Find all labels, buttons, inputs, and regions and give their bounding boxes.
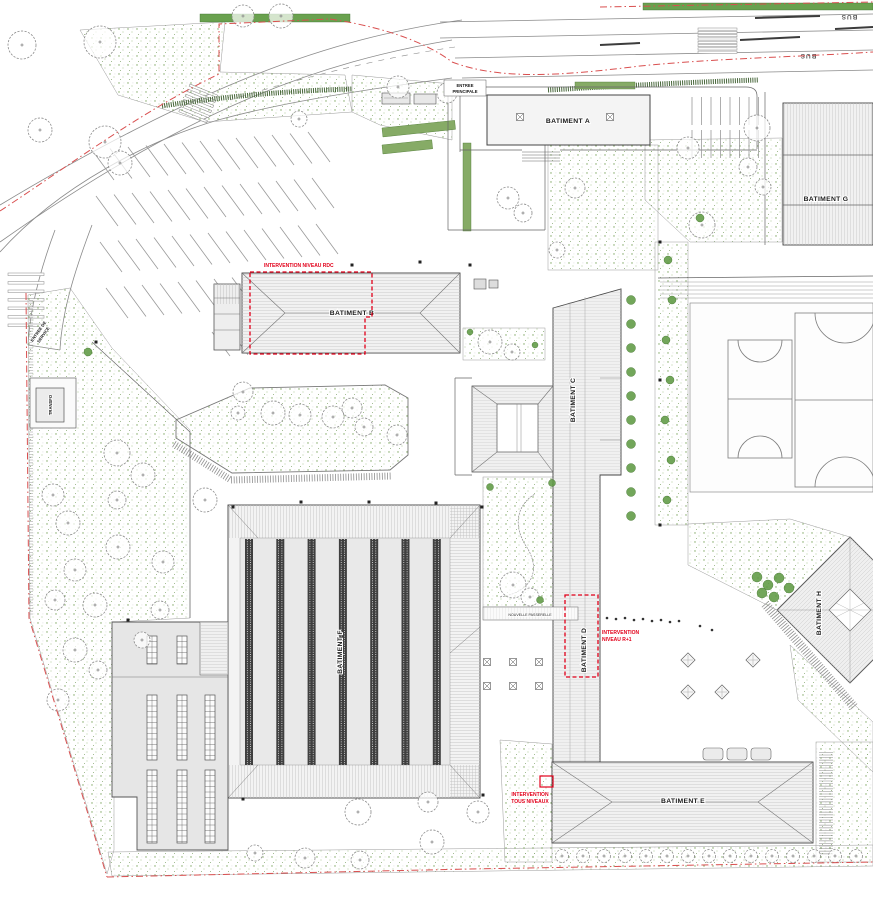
tree <box>231 406 245 420</box>
building-f: BATIMENT F <box>228 505 480 798</box>
roof-shed-band <box>245 539 253 765</box>
parking-stall-line <box>258 183 280 213</box>
site-mark <box>232 506 235 509</box>
shrub <box>627 440 636 449</box>
shrub <box>532 342 538 348</box>
path-dot <box>651 620 654 623</box>
tree <box>104 440 130 466</box>
site-plan: BUS BUS <box>0 0 873 900</box>
tree <box>703 850 716 863</box>
path-dot <box>669 621 672 624</box>
tree <box>47 689 69 711</box>
tree <box>521 588 539 606</box>
shrub <box>784 583 794 593</box>
bus-label: BUS <box>841 13 858 20</box>
shrub <box>84 348 92 356</box>
parking-stall-line <box>150 192 172 222</box>
tree <box>787 850 800 863</box>
entree-principale-label: ENTREE <box>457 83 474 88</box>
site-mark <box>242 798 245 801</box>
parking-stall-line <box>200 141 222 171</box>
tree <box>84 26 116 58</box>
parking-stall-line <box>142 285 164 315</box>
tree <box>108 491 126 509</box>
tree <box>478 330 502 354</box>
crosswalk-stripe <box>8 282 44 285</box>
parking-stall-line <box>208 233 230 263</box>
planters <box>681 653 760 699</box>
parking-stall-line <box>244 230 266 260</box>
shrub <box>664 256 672 264</box>
transfo-building: TRANSFO <box>30 378 76 428</box>
shrub <box>667 456 675 464</box>
shrub <box>627 320 636 329</box>
tree <box>106 535 130 559</box>
intervention-tous-label: TOUS NIVEAUX <box>511 799 549 805</box>
site-mark <box>368 501 371 504</box>
building-d-label: BATIMENT D <box>581 628 588 672</box>
shrub <box>627 368 636 377</box>
intervention-rdc-label: INTERVENTION NIVEAU RDC <box>264 263 334 269</box>
shrub <box>537 597 544 604</box>
building-g: BATIMENT G <box>783 103 873 245</box>
shrub <box>627 488 636 497</box>
parking-stall-line <box>164 144 186 174</box>
site-mark <box>351 264 354 267</box>
path-dot <box>633 619 636 622</box>
path-dot <box>699 625 702 628</box>
parking-stall-line <box>240 184 262 214</box>
tree <box>151 601 169 619</box>
shrub <box>627 344 636 353</box>
parking-stall-line <box>294 180 316 210</box>
path-dot <box>678 620 681 623</box>
tree <box>640 850 653 863</box>
shrub <box>487 484 494 491</box>
tree <box>152 551 174 573</box>
shrub <box>752 572 762 582</box>
shrub <box>757 588 767 598</box>
shrub <box>774 573 784 583</box>
tree <box>850 850 863 863</box>
green-area <box>80 22 352 122</box>
site-mark <box>659 379 662 382</box>
path-dot <box>660 619 663 622</box>
tree <box>682 850 695 863</box>
tree <box>420 830 444 854</box>
shrub <box>696 214 704 222</box>
intervention-r1-label: INTERVENTION <box>602 630 640 636</box>
parking-stall-line <box>146 146 168 176</box>
parking-stall-line <box>136 239 158 269</box>
tree <box>295 848 315 868</box>
tree <box>64 559 86 581</box>
site-mark <box>95 341 98 344</box>
passerelle-label: NOUVELLE PASSERELLE <box>508 613 552 617</box>
shrub <box>627 512 636 521</box>
roof-shed-band <box>433 539 441 765</box>
building-b-label: BATIMENT B <box>330 310 374 317</box>
tree <box>89 661 107 679</box>
building-a-label: BATIMENT A <box>546 118 590 125</box>
running-track-lines <box>660 282 873 298</box>
shrub <box>627 392 636 401</box>
tree <box>619 850 632 863</box>
parking-stall-line <box>154 238 176 268</box>
site-plan-drawing: BUS BUS <box>0 0 873 900</box>
shrub <box>467 329 473 335</box>
tree <box>739 158 757 176</box>
intervention-r1-label: NIVEAU R+1 <box>602 637 632 643</box>
road-edge <box>440 30 873 38</box>
tree <box>467 801 489 823</box>
parking-stall-line <box>186 189 208 219</box>
tree <box>744 115 770 141</box>
transfo-label: TRANSFO <box>48 394 53 415</box>
building-f-label: BATIMENT F <box>337 630 344 674</box>
parking-stall-line <box>124 287 146 317</box>
parking-stall-line <box>172 236 194 266</box>
parking-stall-line <box>218 140 240 170</box>
crosswalk-stripe <box>8 290 44 293</box>
entree-principale-label: PRINCIPALE <box>452 89 477 94</box>
site-mark <box>419 261 422 264</box>
tree <box>45 590 65 610</box>
roof-shed-band <box>370 539 378 765</box>
tree <box>289 404 311 426</box>
tree <box>261 401 285 425</box>
tree <box>193 488 217 512</box>
bike-shelters <box>703 748 771 760</box>
building-h-label: BATIMENT H <box>816 591 823 635</box>
hedge-strip <box>382 140 433 154</box>
tree <box>83 593 107 617</box>
building-e-label: BATIMENT E <box>661 798 705 805</box>
tree <box>28 118 52 142</box>
building-annex <box>112 622 228 850</box>
parking-stall-line <box>308 132 330 162</box>
shrub <box>661 416 669 424</box>
parking-stall-line <box>254 137 276 167</box>
tree <box>56 511 80 535</box>
crosswalk <box>698 28 737 53</box>
tree <box>247 845 263 861</box>
parking-stall-line <box>118 241 140 271</box>
building-b-annex-tower <box>214 284 240 350</box>
shrub <box>627 416 636 425</box>
parking-stall-line <box>236 138 258 168</box>
path-dot <box>606 617 609 620</box>
crosswalk-stripe <box>698 31 737 33</box>
building-a: BATIMENT A <box>487 95 650 145</box>
tree <box>514 204 532 222</box>
site-mark <box>469 264 472 267</box>
parking-stall-line <box>222 186 244 216</box>
site-mark <box>435 502 438 505</box>
hedge-strip <box>575 82 635 89</box>
tree <box>108 151 132 175</box>
parking-stall-line <box>160 284 182 314</box>
tree <box>677 137 699 159</box>
parking-stall-line <box>178 282 200 312</box>
site-mark <box>127 619 130 622</box>
building-g-label: BATIMENT G <box>804 196 849 203</box>
site-mark <box>482 794 485 797</box>
road-edge <box>440 14 873 22</box>
hedge-strip <box>643 3 873 10</box>
crosswalk-stripe <box>698 45 737 47</box>
tree <box>577 850 590 863</box>
parking-stall-line <box>272 135 294 165</box>
parking-stall-line <box>226 232 248 262</box>
site-mark <box>659 241 662 244</box>
parking-stall-line <box>190 235 212 265</box>
roof-shed-band <box>402 539 410 765</box>
tree <box>556 850 569 863</box>
bus-lane-labels: BUS BUS <box>800 13 858 59</box>
shrub <box>666 376 674 384</box>
tree <box>497 187 519 209</box>
parking-stall-line <box>96 196 118 226</box>
tree <box>755 179 771 195</box>
shrub <box>769 592 779 602</box>
roof-shed-band <box>308 539 316 765</box>
parking-stall-line <box>168 190 190 220</box>
site-mark <box>300 501 303 504</box>
crosswalk-stripe <box>698 38 737 40</box>
tree <box>42 484 64 506</box>
tree <box>131 463 155 487</box>
path-dot <box>624 617 627 620</box>
parking-stall-line <box>100 242 122 272</box>
tree <box>387 425 407 445</box>
hedge-strip <box>463 143 471 231</box>
intervention-tous-label: INTERVENTION <box>511 792 549 798</box>
crosswalk-stripe <box>8 273 44 276</box>
pavilion <box>472 386 553 472</box>
building-e: BATIMENT E <box>552 762 813 843</box>
parking-stall-line <box>316 224 338 254</box>
parking-stall-line <box>132 193 154 223</box>
parking-stall-line <box>276 181 298 211</box>
tree <box>808 850 821 863</box>
tree <box>549 242 565 258</box>
path-dot <box>642 618 645 621</box>
tree <box>418 792 438 812</box>
parking-stall-line <box>114 195 136 225</box>
path-dot <box>711 629 714 632</box>
parking-stall-line <box>290 134 312 164</box>
tree <box>291 111 307 127</box>
passerelle: NOUVELLE PASSERELLE <box>483 607 578 620</box>
building-b: BATIMENT B <box>242 273 460 353</box>
shrub <box>627 296 636 305</box>
parking-stall-line <box>298 226 320 256</box>
tree <box>8 31 36 59</box>
shrub <box>663 496 671 504</box>
crosswalk-stripe <box>698 35 737 37</box>
tree <box>63 638 87 662</box>
tree <box>724 850 737 863</box>
road-edge <box>0 40 452 242</box>
tree <box>342 398 362 418</box>
tree <box>355 418 373 436</box>
path-dot <box>615 618 618 621</box>
tree <box>233 382 253 402</box>
parking-stall-line <box>182 143 204 173</box>
tree <box>598 850 611 863</box>
green-island <box>176 385 408 473</box>
shrub <box>627 464 636 473</box>
shrub <box>668 296 676 304</box>
sports-courts <box>690 303 873 492</box>
parking-stall-line <box>262 229 284 259</box>
site-mark <box>659 524 662 527</box>
tree <box>351 851 369 869</box>
parking-stall-line <box>204 187 226 217</box>
crosswalk-stripe <box>698 41 737 43</box>
tree <box>661 850 674 863</box>
parking-stall-line <box>280 227 302 257</box>
parking-stall-line <box>312 178 334 208</box>
tree <box>745 850 758 863</box>
crosswalk-stripe <box>698 28 737 30</box>
tree <box>387 76 409 98</box>
tree <box>134 632 150 648</box>
tree <box>504 344 520 360</box>
shrub <box>662 336 670 344</box>
tree <box>269 4 293 28</box>
tree <box>565 178 585 198</box>
tree <box>345 799 371 825</box>
parking-stall-line <box>106 288 128 318</box>
tree <box>322 406 344 428</box>
building-c-label: BATIMENT C <box>570 378 577 422</box>
crosswalk-stripe <box>698 48 737 50</box>
roof-shed-band <box>276 539 284 765</box>
tree <box>829 850 842 863</box>
crosswalk-stripe <box>698 51 737 53</box>
courts-enclosure <box>690 303 873 492</box>
tree <box>766 850 779 863</box>
shrub <box>549 480 556 487</box>
site-mark <box>481 506 484 509</box>
